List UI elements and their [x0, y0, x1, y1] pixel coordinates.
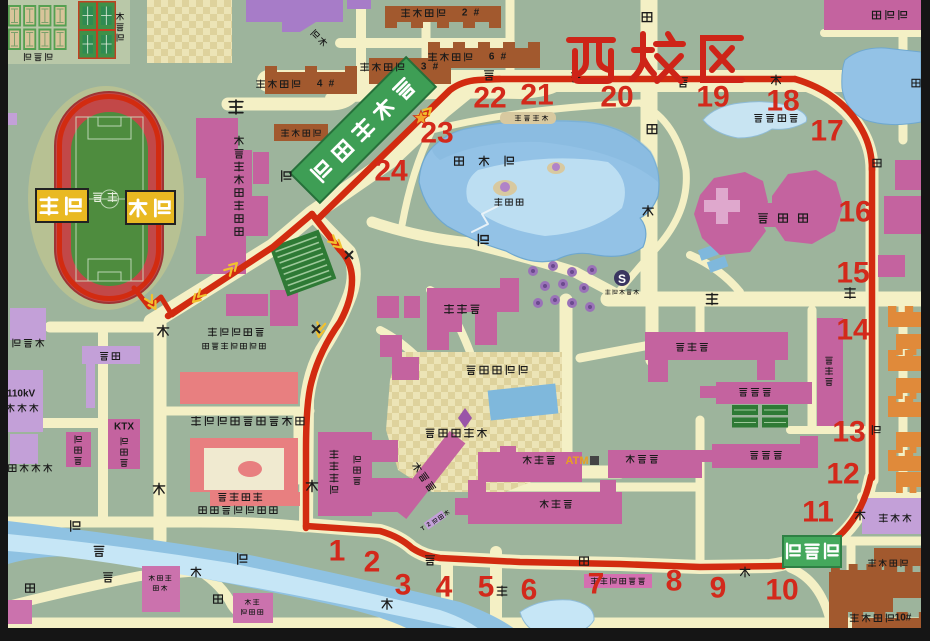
svg-text:16: 16 [838, 196, 871, 229]
svg-text:#: # [501, 52, 507, 63]
svg-text:22: 22 [473, 82, 506, 115]
svg-text:KTX: KTX [114, 422, 134, 433]
svg-text:2: 2 [462, 8, 468, 19]
svg-text:20: 20 [600, 81, 633, 114]
svg-text:#: # [474, 8, 480, 19]
svg-text:12: 12 [826, 458, 859, 491]
svg-text:23: 23 [420, 117, 453, 150]
svg-text:10#: 10# [895, 613, 912, 624]
svg-text:4: 4 [317, 79, 323, 90]
svg-text:#: # [433, 62, 439, 73]
svg-text:24: 24 [374, 155, 408, 188]
svg-text:10: 10 [765, 574, 798, 607]
svg-text:9: 9 [710, 572, 727, 605]
svg-text:14: 14 [836, 314, 870, 347]
svg-text:18: 18 [766, 85, 799, 118]
svg-text:2: 2 [364, 546, 381, 579]
svg-text:15: 15 [836, 257, 869, 290]
svg-text:21: 21 [520, 79, 553, 112]
svg-text:3: 3 [421, 62, 427, 73]
svg-text:17: 17 [810, 115, 843, 148]
svg-text:ATM: ATM [565, 455, 588, 467]
svg-text:4: 4 [436, 571, 453, 604]
svg-text:13: 13 [832, 416, 865, 449]
svg-text:5: 5 [478, 571, 495, 604]
svg-text:#: # [329, 79, 335, 90]
svg-text:8: 8 [666, 565, 683, 598]
svg-text:110kV: 110kV [7, 389, 36, 400]
svg-text:3: 3 [395, 569, 412, 602]
svg-text:S: S [618, 272, 626, 286]
svg-text:6: 6 [489, 52, 495, 63]
svg-text:19: 19 [696, 81, 729, 114]
svg-text:6: 6 [521, 574, 538, 607]
svg-text:1: 1 [329, 535, 346, 568]
svg-text:7: 7 [588, 568, 605, 601]
svg-text:11: 11 [802, 496, 834, 529]
